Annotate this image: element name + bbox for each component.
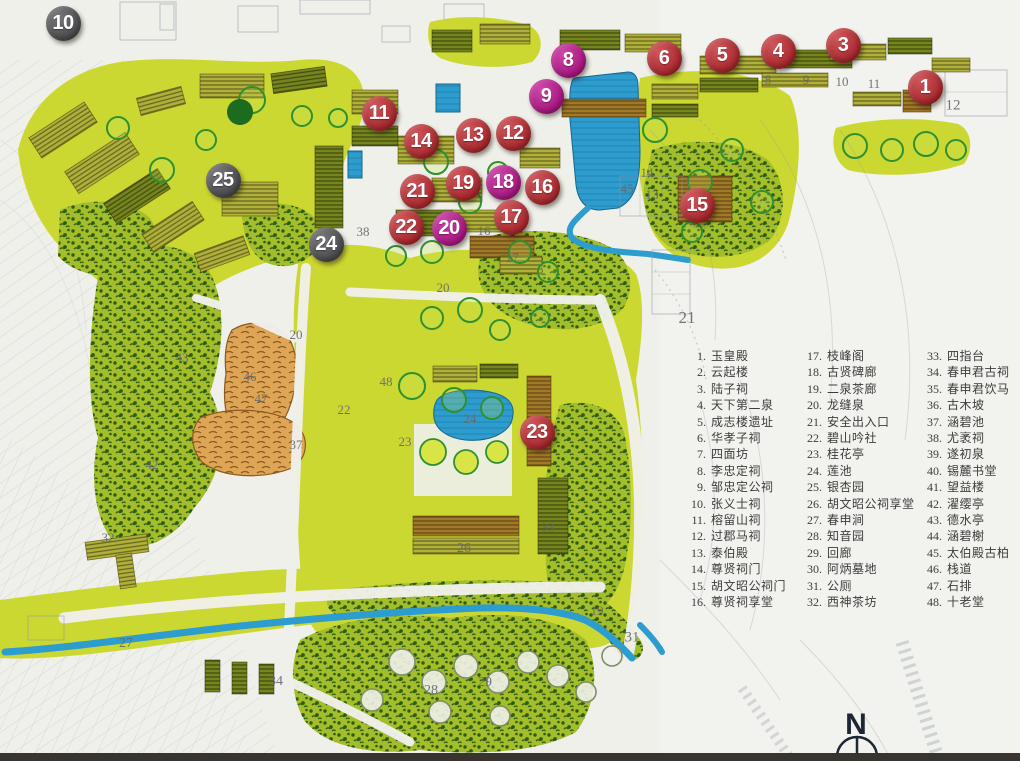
legend-item-3: 3.陆子祠 xyxy=(684,381,800,397)
legend-item-13: 13.泰伯殿 xyxy=(684,545,800,561)
legend-item-label: 华孝子祠 xyxy=(711,430,761,446)
legend-item-number: 40. xyxy=(920,463,942,479)
map-marker-23[interactable]: 23 xyxy=(520,415,555,450)
legend-item-43: 43.德水亭 xyxy=(920,512,1020,528)
legend-item-number: 48. xyxy=(920,594,942,610)
legend-item-label: 云起楼 xyxy=(711,364,749,380)
legend-item-label: 石排 xyxy=(947,578,972,594)
legend-item-label: 过郡马祠 xyxy=(711,528,761,544)
legend-item-number: 29. xyxy=(800,545,822,561)
legend-item-number: 5. xyxy=(684,414,706,430)
legend-item-label: 涵碧池 xyxy=(947,414,985,430)
legend-item-label: 泰伯殿 xyxy=(711,545,749,561)
legend-item-number: 3. xyxy=(684,381,706,397)
legend-item-32: 32.西神茶坊 xyxy=(800,594,920,610)
legend-item-35: 35.春申君饮马 xyxy=(920,381,1020,397)
legend-item-label: 四指台 xyxy=(947,348,985,364)
legend-item-20: 20.龙缝泉 xyxy=(800,397,920,413)
legend-item-label: 望益楼 xyxy=(947,479,985,495)
legend-item-label: 枝峰阁 xyxy=(827,348,865,364)
legend-item-44: 44.涵碧榭 xyxy=(920,528,1020,544)
legend-item-label: 春申君饮马 xyxy=(947,381,1010,397)
legend-item-label: 胡文昭公祠门 xyxy=(711,578,786,594)
legend-item-label: 尤袤祠 xyxy=(947,430,985,446)
legend-item-number: 8. xyxy=(684,463,706,479)
legend-item-label: 碧山吟社 xyxy=(827,430,877,446)
legend-item-label: 十老堂 xyxy=(947,594,985,610)
legend-item-number: 11. xyxy=(684,512,706,528)
legend-item-label: 桂花亭 xyxy=(827,446,865,462)
map-marker-18[interactable]: 18 xyxy=(486,165,521,200)
legend-item-label: 锡麓书堂 xyxy=(947,463,997,479)
map-marker-17[interactable]: 17 xyxy=(494,200,529,235)
legend-item-37: 37.涵碧池 xyxy=(920,414,1020,430)
legend-item-number: 6. xyxy=(684,430,706,446)
garden-site-plan-photo: N 89101112144513381617202120434648472224… xyxy=(0,0,1020,761)
legend-item-number: 23. xyxy=(800,446,822,462)
legend-item-number: 31. xyxy=(800,578,822,594)
legend-item-number: 21. xyxy=(800,414,822,430)
map-marker-10[interactable]: 10 xyxy=(46,6,81,41)
legend-item-label: 公厕 xyxy=(827,578,852,594)
legend-item-31: 31.公厕 xyxy=(800,578,920,594)
map-marker-15[interactable]: 15 xyxy=(680,188,715,223)
legend-item-label: 天下第二泉 xyxy=(711,397,774,413)
legend-item-label: 成志楼遗址 xyxy=(711,414,774,430)
map-marker-19[interactable]: 19 xyxy=(446,166,481,201)
legend-item-45: 45.太伯殿古柏 xyxy=(920,545,1020,561)
legend-item-number: 32. xyxy=(800,594,822,610)
legend-item-9: 9.邹忠定公祠 xyxy=(684,479,800,495)
legend-item-number: 10. xyxy=(684,496,706,512)
legend-item-label: 阿炳墓地 xyxy=(827,561,877,577)
legend-item-28: 28.知音园 xyxy=(800,528,920,544)
legend-item-number: 22. xyxy=(800,430,822,446)
legend-item-30: 30.阿炳墓地 xyxy=(800,561,920,577)
legend-item-number: 38. xyxy=(920,430,942,446)
map-marker-9[interactable]: 9 xyxy=(529,79,564,114)
legend-item-46: 46.栈道 xyxy=(920,561,1020,577)
legend-item-36: 36.古木坡 xyxy=(920,397,1020,413)
legend-item-33: 33.四指台 xyxy=(920,348,1020,364)
legend-item-11: 11.榕留山祠 xyxy=(684,512,800,528)
legend-item-label: 古贤碑廊 xyxy=(827,364,877,380)
legend-item-label: 玉皇殿 xyxy=(711,348,749,364)
legend-item-number: 1. xyxy=(684,348,706,364)
legend-item-15: 15.胡文昭公祠门 xyxy=(684,578,800,594)
legend-item-label: 涵碧榭 xyxy=(947,528,985,544)
legend-item-label: 邹忠定公祠 xyxy=(711,479,774,495)
legend-item-6: 6.华孝子祠 xyxy=(684,430,800,446)
legend-item-label: 银杏园 xyxy=(827,479,865,495)
map-marker-1[interactable]: 1 xyxy=(908,70,943,105)
legend-item-1: 1.玉皇殿 xyxy=(684,348,800,364)
legend-item-label: 德水亭 xyxy=(947,512,985,528)
legend-item-label: 古木坡 xyxy=(947,397,985,413)
legend-item-number: 30. xyxy=(800,561,822,577)
legend-item-label: 莲池 xyxy=(827,463,852,479)
legend-item-number: 43. xyxy=(920,512,942,528)
legend-item-number: 9. xyxy=(684,479,706,495)
legend-item-number: 37. xyxy=(920,414,942,430)
map-marker-20[interactable]: 20 xyxy=(432,211,467,246)
legend-item-number: 27. xyxy=(800,512,822,528)
legend-item-number: 20. xyxy=(800,397,822,413)
legend-item-27: 27.春申涧 xyxy=(800,512,920,528)
legend-item-number: 39. xyxy=(920,446,942,462)
legend-item-number: 25. xyxy=(800,479,822,495)
legend-item-17: 17.枝峰阁 xyxy=(800,348,920,364)
legend-item-number: 42. xyxy=(920,496,942,512)
map-marker-22[interactable]: 22 xyxy=(389,210,424,245)
legend-item-label: 二泉茶廊 xyxy=(827,381,877,397)
legend-item-label: 遂初泉 xyxy=(947,446,985,462)
legend-item-number: 7. xyxy=(684,446,706,462)
map-marker-4[interactable]: 4 xyxy=(761,34,796,69)
legend-item-number: 44. xyxy=(920,528,942,544)
legend-item-number: 12. xyxy=(684,528,706,544)
legend-item-number: 14. xyxy=(684,561,706,577)
map-marker-5[interactable]: 5 xyxy=(705,38,740,73)
legend-item-number: 16. xyxy=(684,594,706,610)
map-marker-16[interactable]: 16 xyxy=(525,170,560,205)
legend-item-14: 14.尊贤祠门 xyxy=(684,561,800,577)
legend-item-number: 47. xyxy=(920,578,942,594)
legend-item-label: 张义士祠 xyxy=(711,496,761,512)
legend-item-label: 龙缝泉 xyxy=(827,397,865,413)
legend-item-21: 21.安全出入口 xyxy=(800,414,920,430)
legend-item-label: 安全出入口 xyxy=(827,414,890,430)
legend-item-41: 41.望益楼 xyxy=(920,479,1020,495)
map-marker-11[interactable]: 11 xyxy=(362,96,397,131)
map-marker-12[interactable]: 12 xyxy=(496,116,531,151)
legend-item-22: 22.碧山吟社 xyxy=(800,430,920,446)
legend-item-39: 39.遂初泉 xyxy=(920,446,1020,462)
map-marker-3[interactable]: 3 xyxy=(826,28,861,63)
legend-item-number: 35. xyxy=(920,381,942,397)
legend-item-number: 34. xyxy=(920,364,942,380)
legend-item-label: 太伯殿古柏 xyxy=(947,545,1010,561)
legend-item-18: 18.古贤碑廊 xyxy=(800,364,920,380)
legend-item-number: 24. xyxy=(800,463,822,479)
legend-item-label: 栈道 xyxy=(947,561,972,577)
legend-item-number: 45. xyxy=(920,545,942,561)
map-marker-14[interactable]: 14 xyxy=(404,124,439,159)
legend-column-1: 1.玉皇殿2.云起楼3.陆子祠4.天下第二泉5.成志楼遗址6.华孝子祠7.四面坊… xyxy=(684,348,800,611)
legend-item-number: 28. xyxy=(800,528,822,544)
legend-item-label: 尊贤祠享堂 xyxy=(711,594,774,610)
legend-item-number: 41. xyxy=(920,479,942,495)
legend-item-40: 40.锡麓书堂 xyxy=(920,463,1020,479)
legend-item-47: 47.石排 xyxy=(920,578,1020,594)
map-marker-13[interactable]: 13 xyxy=(456,118,491,153)
legend-item-10: 10.张义士祠 xyxy=(684,496,800,512)
legend-item-38: 38.尤袤祠 xyxy=(920,430,1020,446)
legend-item-number: 4. xyxy=(684,397,706,413)
legend-item-16: 16.尊贤祠享堂 xyxy=(684,594,800,610)
legend-item-number: 15. xyxy=(684,578,706,594)
legend-item-29: 29.回廊 xyxy=(800,545,920,561)
legend-item-label: 胡文昭公祠享堂 xyxy=(827,496,915,512)
legend-item-label: 知音园 xyxy=(827,528,865,544)
legend-item-8: 8.李忠定祠 xyxy=(684,463,800,479)
legend-item-34: 34.春申君古祠 xyxy=(920,364,1020,380)
map-marker-25[interactable]: 25 xyxy=(206,163,241,198)
legend-item-number: 26. xyxy=(800,496,822,512)
legend-item-label: 春申涧 xyxy=(827,512,865,528)
legend-item-label: 四面坊 xyxy=(711,446,749,462)
legend-column-2: 17.枝峰阁18.古贤碑廊19.二泉茶廊20.龙缝泉21.安全出入口22.碧山吟… xyxy=(800,348,920,611)
map-marker-6[interactable]: 6 xyxy=(647,41,682,76)
legend-item-24: 24.莲池 xyxy=(800,463,920,479)
legend-item-label: 榕留山祠 xyxy=(711,512,761,528)
legend-item-19: 19.二泉茶廊 xyxy=(800,381,920,397)
map-marker-21[interactable]: 21 xyxy=(400,174,435,209)
legend-item-number: 36. xyxy=(920,397,942,413)
legend-item-label: 李忠定祠 xyxy=(711,463,761,479)
legend-item-number: 2. xyxy=(684,364,706,380)
legend-item-48: 48.十老堂 xyxy=(920,594,1020,610)
legend-item-7: 7.四面坊 xyxy=(684,446,800,462)
legend-item-2: 2.云起楼 xyxy=(684,364,800,380)
map-marker-24[interactable]: 24 xyxy=(309,227,344,262)
legend-item-number: 17. xyxy=(800,348,822,364)
legend-item-label: 回廊 xyxy=(827,545,852,561)
legend-column-3: 33.四指台34.春申君古祠35.春申君饮马36.古木坡37.涵碧池38.尤袤祠… xyxy=(920,348,1020,611)
legend-item-42: 42.濯缨亭 xyxy=(920,496,1020,512)
legend-item-12: 12.过郡马祠 xyxy=(684,528,800,544)
legend-item-number: 33. xyxy=(920,348,942,364)
legend-item-label: 陆子祠 xyxy=(711,381,749,397)
legend: 1.玉皇殿2.云起楼3.陆子祠4.天下第二泉5.成志楼遗址6.华孝子祠7.四面坊… xyxy=(684,348,1020,611)
legend-item-4: 4.天下第二泉 xyxy=(684,397,800,413)
legend-item-number: 18. xyxy=(800,364,822,380)
legend-item-label: 西神茶坊 xyxy=(827,594,877,610)
legend-item-number: 13. xyxy=(684,545,706,561)
legend-item-25: 25.银杏园 xyxy=(800,479,920,495)
legend-item-5: 5.成志楼遗址 xyxy=(684,414,800,430)
legend-item-number: 46. xyxy=(920,561,942,577)
legend-item-label: 尊贤祠门 xyxy=(711,561,761,577)
map-marker-8[interactable]: 8 xyxy=(551,43,586,78)
legend-item-label: 濯缨亭 xyxy=(947,496,985,512)
legend-item-26: 26.胡文昭公祠享堂 xyxy=(800,496,920,512)
legend-item-23: 23.桂花亭 xyxy=(800,446,920,462)
legend-item-label: 春申君古祠 xyxy=(947,364,1010,380)
legend-item-number: 19. xyxy=(800,381,822,397)
